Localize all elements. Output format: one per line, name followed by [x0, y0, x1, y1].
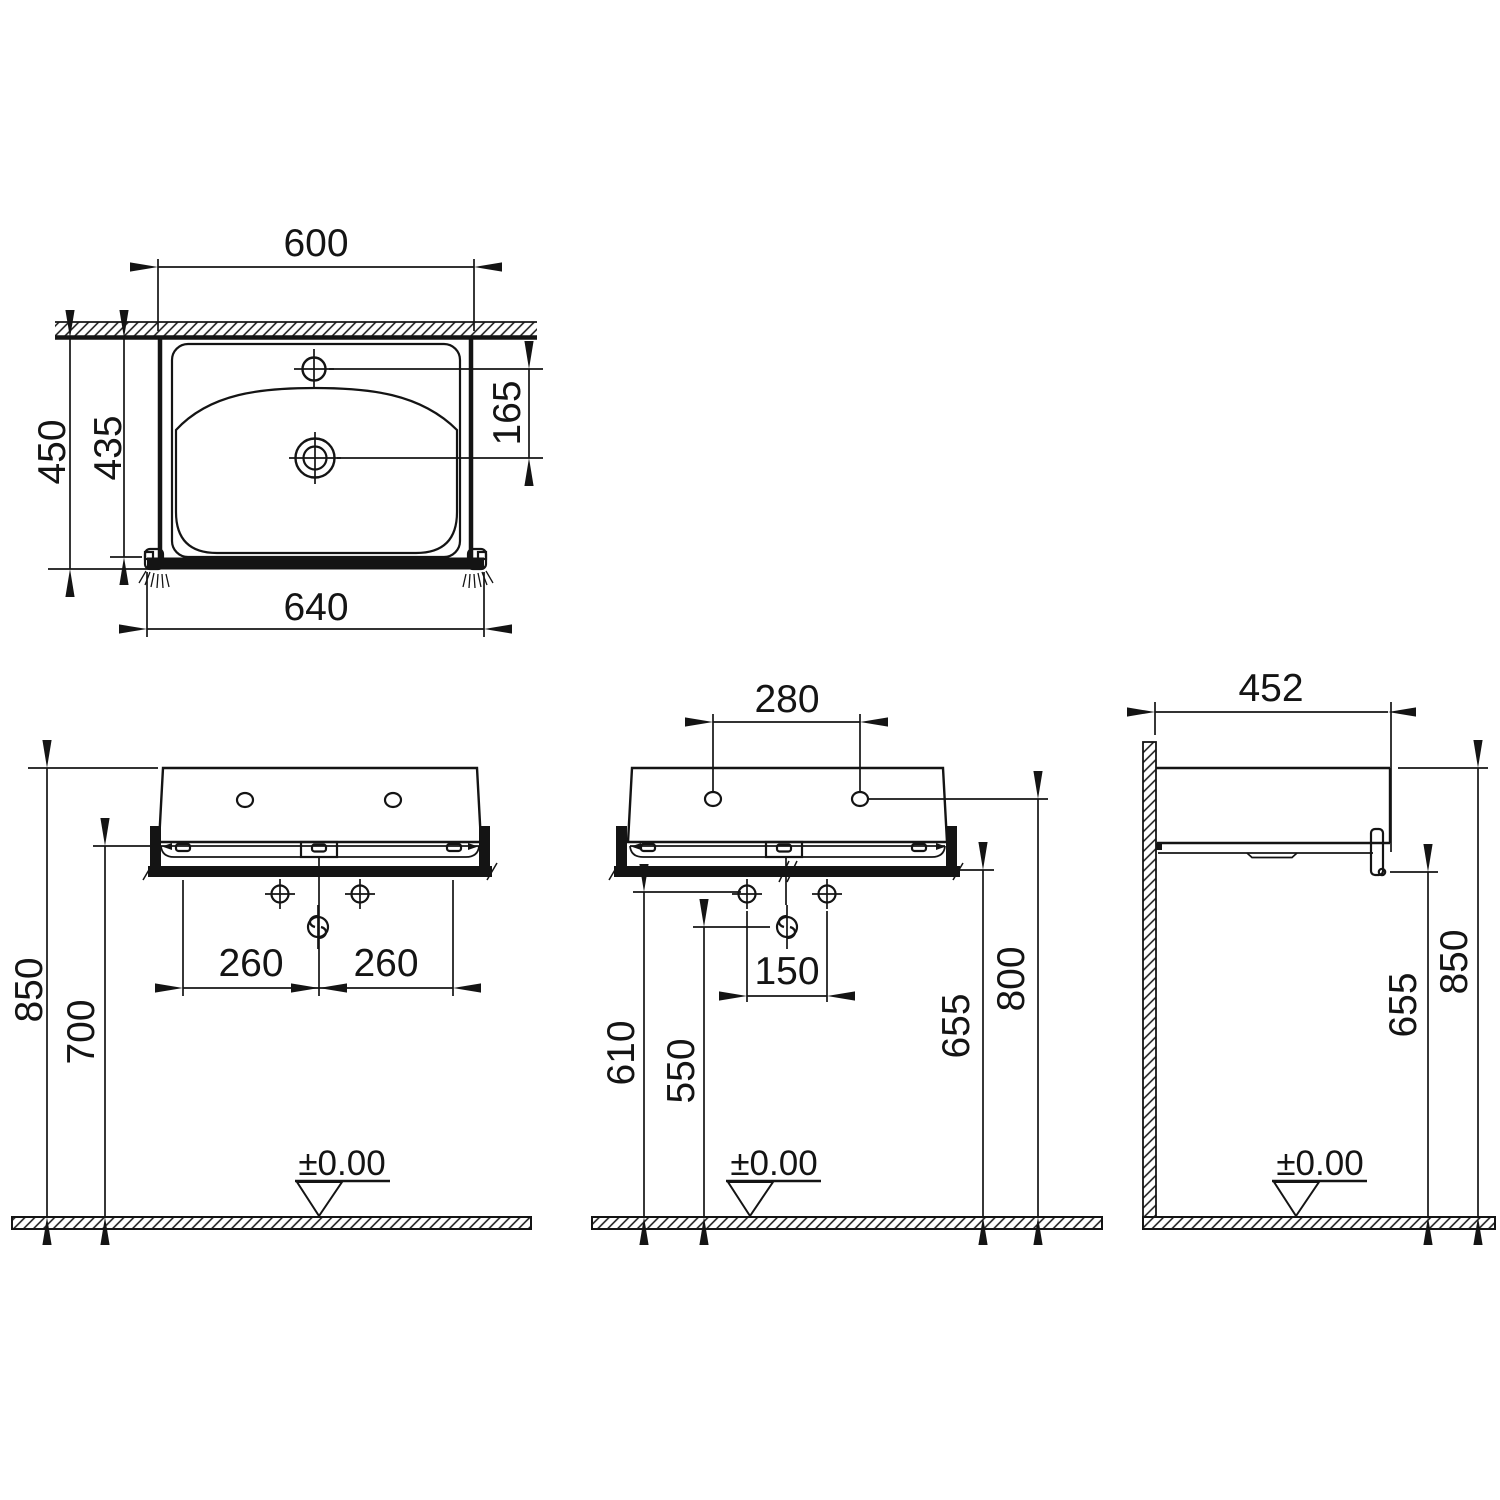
dim-label-150: 150	[754, 950, 819, 993]
wall-section-side	[1143, 742, 1156, 1217]
front-view-left: 850 700 260 260 ±0.00	[8, 768, 531, 1229]
datum-symbol-right: ±0.00	[1272, 1144, 1367, 1216]
dim-label-550: 550	[660, 1038, 703, 1103]
dim-label-435: 435	[87, 415, 130, 480]
technical-drawing-washbasin: 600 640 450 435 165	[0, 0, 1500, 1500]
basin-side-profile	[1156, 768, 1390, 875]
tap-hole-front2-right	[852, 792, 868, 806]
fixing-hole-left	[265, 879, 295, 909]
drain-outlet-symbol-2	[777, 905, 797, 949]
dim-label-450: 450	[31, 419, 74, 484]
dim-label-260-left: 260	[218, 942, 283, 985]
fixing-hole-right	[345, 879, 375, 909]
fixing-hole2-left	[732, 879, 762, 909]
dim-label-280: 280	[754, 678, 819, 721]
dim-label-655-side: 655	[1382, 972, 1425, 1037]
plan-view: 600 640 450 435 165	[31, 222, 543, 637]
side-view: 452 655 850 ±0.00	[1143, 667, 1495, 1229]
dim-label-640: 640	[283, 586, 348, 629]
dim-label-260-right: 260	[353, 942, 418, 985]
dim-front-height-underside: 700	[60, 846, 158, 1217]
basin-front-body	[159, 768, 481, 842]
dim-label-452: 452	[1238, 667, 1303, 710]
drain-outlet-symbol	[308, 905, 328, 949]
dim-plan-tap-to-drain: 165	[486, 369, 529, 458]
drawing-svg: 600 640 450 435 165	[0, 0, 1500, 1500]
dim-plan-width-total: 640	[147, 572, 484, 637]
datum-symbol-left: ±0.00	[295, 1144, 390, 1216]
wall-section	[55, 322, 537, 338]
datum-label-2: ±0.00	[730, 1144, 817, 1183]
floor-section-left	[12, 1217, 531, 1229]
floor-section-middle	[592, 1217, 1102, 1229]
dim-label-800: 800	[990, 946, 1033, 1011]
dim-label-700: 700	[60, 999, 103, 1064]
dim-front-height-overall: 850	[8, 768, 158, 1217]
dim-side-depth: 452	[1155, 667, 1391, 852]
drain-hole-symbol	[289, 432, 341, 484]
dim-label-655-front: 655	[935, 993, 978, 1058]
dim-label-165: 165	[486, 380, 529, 445]
tap-hole-symbol	[294, 349, 334, 389]
datum-label-3: ±0.00	[1276, 1144, 1363, 1183]
dim-plan-width-top: 600	[158, 222, 474, 331]
tap-hole-front-right	[385, 793, 401, 807]
dim-label-850-side: 850	[1433, 929, 1476, 994]
dim-side-height-underside: 655	[1382, 872, 1438, 1217]
datum-label: ±0.00	[298, 1144, 385, 1183]
dim-plan-depth-inner: 435	[87, 338, 142, 557]
dim-height-underside-2: 655	[935, 870, 994, 1217]
dim-tap-spacing: 280	[713, 678, 860, 791]
tap-hole-front-left	[237, 793, 253, 807]
datum-symbol-middle: ±0.00	[726, 1144, 821, 1216]
rim-assembly	[143, 826, 497, 880]
dim-label-600: 600	[283, 222, 348, 265]
floor-section-right	[1143, 1217, 1495, 1229]
fixing-hole2-right	[812, 879, 842, 909]
dim-label-610: 610	[600, 1020, 643, 1085]
basin-plan-outline	[139, 338, 493, 588]
tap-hole-front2-left	[705, 792, 721, 806]
dim-height-taphole: 800	[990, 799, 1038, 1217]
basin-front-body-2	[628, 768, 947, 842]
front-view-middle: 280 150 610 550 655	[592, 678, 1102, 1229]
dim-label-850-front: 850	[8, 957, 51, 1022]
